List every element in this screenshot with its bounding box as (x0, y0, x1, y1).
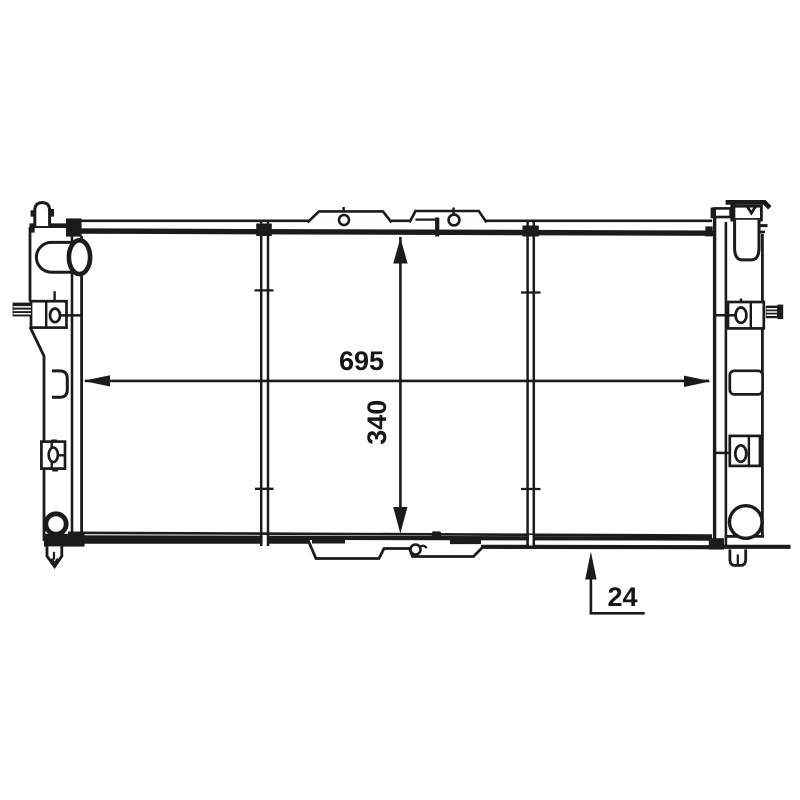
svg-text:24: 24 (608, 582, 638, 612)
svg-text:695: 695 (339, 346, 384, 376)
svg-text:340: 340 (362, 400, 392, 445)
